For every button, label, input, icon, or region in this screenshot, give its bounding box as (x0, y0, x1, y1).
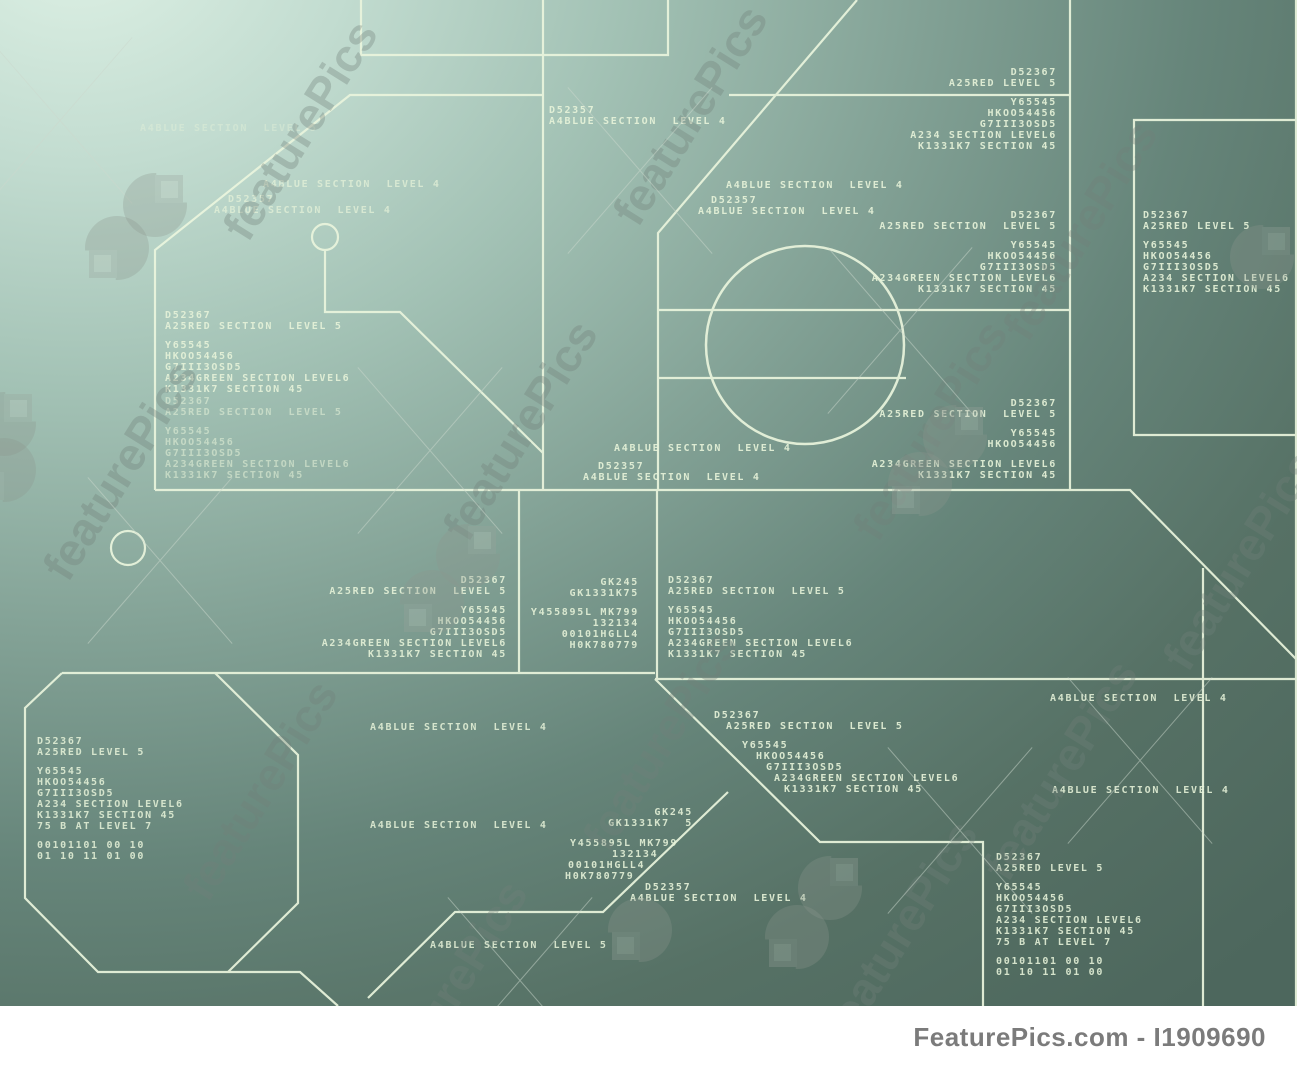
label-line: A25RED LEVEL 5 (910, 79, 1057, 90)
label-line: A25RED SECTION LEVEL 5 (165, 322, 350, 333)
schematic-background: A4BLUE SECTION LEVEL 5A4BLUE SECTION LEV… (0, 0, 1297, 1006)
watermark-logo (0, 392, 36, 456)
label-block: GK245GK1331K7 5 (608, 808, 693, 830)
label-line: GK1331K75 (531, 589, 639, 600)
label-line: A25RED SECTION LEVEL 5 (872, 410, 1057, 421)
label-block: D52367A25RED SECTION LEVEL 5Y65545HKOO54… (714, 711, 959, 796)
label-line: K1331K7 SECTION 45 (165, 385, 350, 396)
label-block: D52357A4BLUE SECTION LEVEL 4 (549, 106, 727, 128)
label-line: A4BLUE SECTION LEVEL 5 (430, 941, 608, 952)
label-line: K1331K7 SECTION 45 (872, 471, 1057, 482)
label-block: D52367A25RED SECTION LEVEL 5Y65545HKOO54… (165, 311, 350, 396)
watermark-text: featurePics (171, 671, 348, 910)
label-line: A4BLUE SECTION LEVEL 4 (726, 181, 904, 192)
label-line: 75 B AT LEVEL 7 (37, 822, 184, 833)
top-notch-line (361, 0, 668, 55)
label-block: D52367A25RED LEVEL 5Y65545HKOO54456G7III… (37, 737, 184, 863)
label-line: K1331K7 SECTION 45 (1143, 285, 1290, 296)
watermark-text: featurePics (811, 811, 988, 1006)
label-line: K1331K7 SECTION 45 (872, 285, 1057, 296)
label-line: A25RED SECTION LEVEL 5 (668, 587, 853, 598)
label-line: HKOO54456 (872, 440, 1057, 451)
label-line: A25RED LEVEL 5 (1143, 222, 1290, 233)
label-block: A4BLUE SECTION LEVEL 4 (1050, 694, 1228, 705)
watermark-text: featurePics (1151, 441, 1297, 680)
label-block: A4BLUE SECTION LEVEL 4 (1052, 786, 1230, 797)
watermark-logo (765, 905, 829, 969)
label-block: D52367A25RED SECTION LEVEL 5Y65545HKOO54… (165, 397, 350, 482)
label-block: D52367A25RED LEVEL 5Y65545HKOO54456G7III… (910, 68, 1057, 153)
label-block: A4BLUE SECTION LEVEL 4 (370, 821, 548, 832)
stem-polyline (325, 250, 543, 453)
label-line: 01 10 11 01 00 (37, 852, 184, 863)
small-circle-top (312, 224, 338, 250)
label-line: A25RED LEVEL 5 (996, 864, 1143, 875)
label-line: 75 B AT LEVEL 7 (996, 938, 1143, 949)
label-block: D52367A25RED SECTION LEVEL 5Y65545HKOO54… (668, 576, 853, 661)
watermark-text: featurePics (431, 311, 608, 550)
label-line: A4BLUE SECTION LEVEL 4 (549, 117, 727, 128)
label-line: A4BLUE SECTION LEVEL 4 (263, 180, 441, 191)
label-line: A4BLUE SECTION LEVEL 4 (583, 473, 761, 484)
label-block: A4BLUE SECTION LEVEL 4 (370, 723, 548, 734)
label-line: 01 10 11 01 00 (996, 968, 1143, 979)
upper-right-diagonal (658, 0, 857, 490)
label-block: D52367A25RED SECTION LEVEL 5Y65545HKOO54… (872, 399, 1057, 482)
watermark-logo (123, 173, 187, 237)
label-line: A4BLUE SECTION LEVEL 5 (140, 124, 318, 135)
label-block: A4BLUE SECTION LEVEL 4 (263, 180, 441, 191)
label-line: K1331K7 SECTION 45 (322, 650, 507, 661)
label-block: Y455895L MK79913213400101HGLL4H0K780779 (570, 839, 678, 883)
label-line: GK1331K7 5 (608, 819, 693, 830)
label-line: A234GREEN SECTION LEVEL6 (872, 460, 1057, 471)
label-block: A4BLUE SECTION LEVEL 5 (430, 941, 608, 952)
label-line: K1331K7 SECTION 45 (668, 650, 853, 661)
label-line: K1331K7 SECTION 45 (165, 471, 350, 482)
label-block: D52367A25RED SECTION LEVEL 5Y65545HKOO54… (872, 211, 1057, 296)
label-block: D52367A25RED SECTION LEVEL 5Y65545HKOO54… (322, 576, 507, 661)
footer-bar: FeaturePics.com - I1909690 (0, 1006, 1300, 1069)
label-block: A4BLUE SECTION LEVEL 4 (726, 181, 904, 192)
watermark-logo (85, 216, 149, 280)
label-block: D52367A25RED LEVEL 5Y65545HKOO54456G7III… (996, 853, 1143, 979)
label-line: A25RED LEVEL 5 (37, 748, 184, 759)
label-block: D52367A25RED LEVEL 5Y65545HKOO54456G7III… (1143, 211, 1290, 296)
label-block: D52357A4BLUE SECTION LEVEL 4 (711, 196, 876, 218)
label-line: A25RED SECTION LEVEL 5 (872, 222, 1057, 233)
label-block: D52357A4BLUE SECTION LEVEL 4 (598, 462, 761, 484)
watermark-text: featurePics (361, 871, 538, 1006)
label-line: A4BLUE SECTION LEVEL 4 (614, 444, 792, 455)
label-block: GK245GK1331K75Y455895L MK79913213400101H… (531, 578, 639, 652)
label-line: A4BLUE SECTION LEVEL 4 (370, 821, 548, 832)
label-line: A4BLUE SECTION LEVEL 4 (1052, 786, 1230, 797)
watermark-logo (0, 438, 36, 502)
label-line: A25RED SECTION LEVEL 5 (322, 587, 507, 598)
bottom-left-inner-outline (215, 673, 298, 972)
watermark-logo (798, 856, 862, 920)
label-line: A4BLUE SECTION LEVEL 4 (370, 723, 548, 734)
label-block: D52357A4BLUE SECTION LEVEL 4 (645, 883, 808, 905)
label-line: H0K780779 (565, 872, 678, 883)
label-line: A4BLUE SECTION LEVEL 4 (1050, 694, 1228, 705)
label-line: A25RED SECTION LEVEL 5 (726, 722, 959, 733)
small-circle-left (111, 531, 145, 565)
label-line: A4BLUE SECTION LEVEL 4 (630, 894, 808, 905)
label-line: A4BLUE SECTION LEVEL 4 (698, 207, 876, 218)
label-line: A4BLUE SECTION LEVEL 4 (214, 206, 392, 217)
label-line: H0K780779 (531, 641, 639, 652)
label-line: K1331K7 SECTION 45 (784, 785, 959, 796)
stock-illustration-canvas: A4BLUE SECTION LEVEL 5A4BLUE SECTION LEV… (0, 0, 1300, 1069)
label-block: D52357A4BLUE SECTION LEVEL 4 (228, 195, 392, 217)
label-line: K1331K7 SECTION 45 (910, 142, 1057, 153)
label-block: A4BLUE SECTION LEVEL 5 (140, 124, 318, 135)
watermark-logo (608, 898, 672, 962)
footer-credit-text: FeaturePics.com - I1909690 (913, 1022, 1266, 1053)
label-block: A4BLUE SECTION LEVEL 4 (614, 444, 792, 455)
label-line: A25RED SECTION LEVEL 5 (165, 408, 350, 419)
